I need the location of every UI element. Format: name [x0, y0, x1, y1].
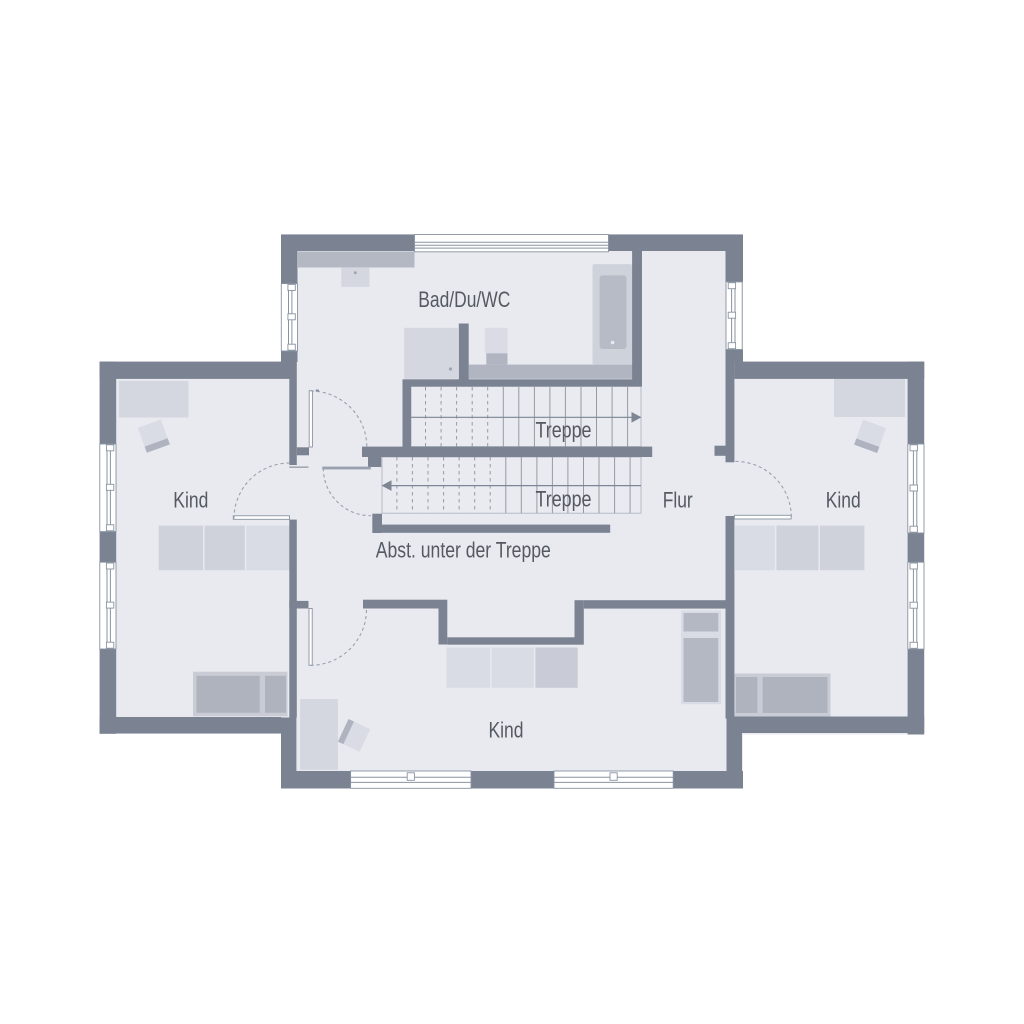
svg-text:Abst. unter der Treppe: Abst. unter der Treppe: [376, 538, 551, 563]
svg-text:Flur: Flur: [663, 488, 693, 513]
svg-text:Bad/Du/WC: Bad/Du/WC: [418, 287, 510, 312]
svg-text:Kind: Kind: [173, 488, 208, 513]
svg-text:Kind: Kind: [826, 488, 861, 513]
svg-text:Treppe: Treppe: [536, 487, 592, 512]
svg-text:Treppe: Treppe: [536, 417, 592, 442]
svg-text:Kind: Kind: [489, 718, 524, 743]
